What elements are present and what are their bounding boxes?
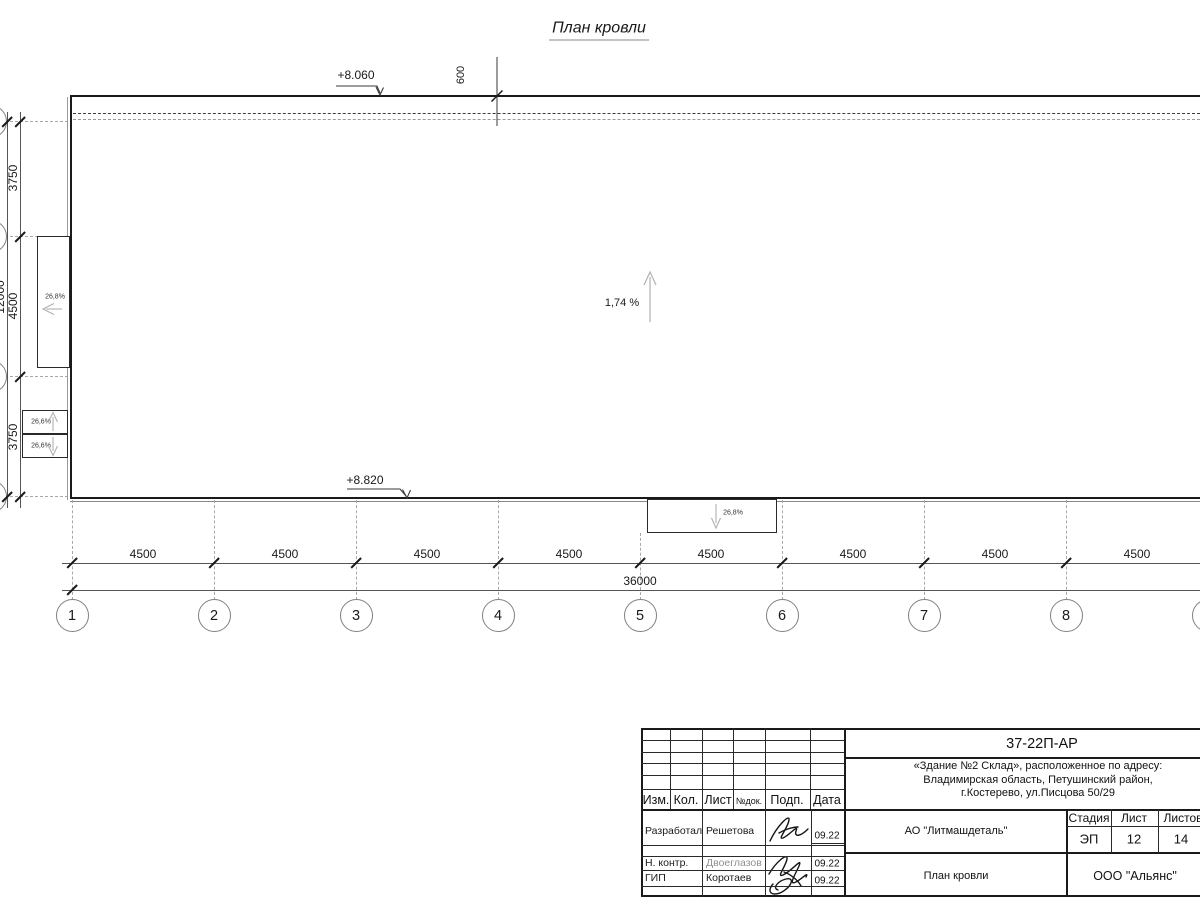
tb-line [811, 809, 812, 897]
signature-gip [769, 857, 807, 894]
tb-drawing-name: План кровли [924, 870, 989, 882]
titleblock-right-divider [845, 852, 1200, 854]
titleblock-divider-h [641, 809, 1200, 811]
tb-doc-code: 37-22П-АР [1006, 736, 1078, 752]
page-title: План кровли [549, 20, 649, 41]
tb-line [641, 763, 844, 764]
grid-line-left-3 [0, 376, 68, 377]
bottom-span-dim-5: 4500 [698, 547, 725, 561]
tb-contractor: ООО "Альянс" [1093, 869, 1177, 883]
tb-line [765, 809, 766, 897]
tb-line [641, 775, 844, 776]
tb-address-line-2: Владимирская область, Петушинский район, [923, 774, 1152, 786]
bottom-span-dim-7: 4500 [982, 547, 1009, 561]
tb-line [641, 870, 844, 871]
tb-sheet-value: 12 [1127, 832, 1141, 847]
tb-col-izm: Изм. [643, 793, 670, 807]
titleblock-code-divider [845, 757, 1200, 759]
tb-address-line-1: «Здание №2 Склад», расположенное по адре… [914, 760, 1163, 772]
tb-col-date: Дата [813, 793, 841, 807]
axis-bubble-1: 1 [56, 599, 89, 632]
lower-left-slope-top-label: 26,6% [31, 419, 51, 426]
bottom-span-dim-4: 4500 [556, 547, 583, 561]
axis-extension-line [214, 500, 215, 600]
tb-col-doc: №док. [736, 796, 762, 806]
titleblock-divider-main [844, 728, 846, 897]
tb-role-razrabotal: Разработал [645, 825, 702, 837]
tb-role-nkontr: Н. контр. [645, 857, 688, 869]
elevation-mark-top: +8.060 [337, 68, 374, 82]
left-canopy [37, 236, 70, 368]
drawing-sheet: План кровли +8.060 600 +8.820 1,74 % 26,… [0, 0, 1200, 900]
elevation-leader-top-icon [336, 86, 384, 95]
tb-line [702, 809, 703, 897]
grid-line-left-4 [0, 496, 68, 497]
parapet-dashed-line-2 [73, 119, 1200, 120]
bottom-canopy [647, 499, 777, 533]
axis-bubble-left-3 [0, 360, 7, 393]
parapet-dashed-line-1 [73, 113, 1200, 114]
bottom-span-dim-1: 4500 [130, 547, 157, 561]
tb-name-gip: Коротаев [706, 872, 751, 884]
bottom-span-dim-3: 4500 [414, 547, 441, 561]
axis-bubble-7: 7 [908, 599, 941, 632]
tb-address-line-3: г.Костерево, ул.Писцова 50/29 [961, 787, 1115, 799]
tb-line [1111, 809, 1112, 853]
lower-left-slope-bottom-label: 26,6% [31, 443, 51, 450]
axis-extension-line [924, 500, 925, 600]
axis-extension-line [782, 500, 783, 600]
bottom-span-dim-8: 4500 [1124, 547, 1151, 561]
tb-sheet-label: Лист [1121, 811, 1147, 825]
tb-line [641, 845, 844, 846]
bottom-span-dim-6: 4500 [840, 547, 867, 561]
tb-line [641, 789, 844, 790]
axis-bubble-3: 3 [340, 599, 373, 632]
titleblock-border-top [641, 728, 1200, 730]
tb-line [811, 843, 844, 844]
tb-col-list: Лист [704, 793, 731, 807]
elevation-mark-bottom: +8.820 [346, 473, 383, 487]
parapet-offset-dim: 600 [455, 66, 467, 84]
tb-date-razrabotal: 09.22 [814, 831, 839, 842]
axis-bubble-6: 6 [766, 599, 799, 632]
tb-line [1158, 809, 1159, 853]
left-dim-line [20, 112, 21, 508]
left-canopy-slope-label: 26,8% [45, 294, 65, 301]
lower-left-canopy-divider [22, 433, 68, 435]
titleblock-border-bottom [641, 895, 1200, 897]
axis-bubble-5: 5 [624, 599, 657, 632]
tb-sheets-label: Листов [1164, 811, 1200, 825]
bottom-canopy-slope-label: 26,8% [723, 510, 743, 517]
tb-stage-label: Стадия [1069, 811, 1110, 825]
left-span-dim-1: 3750 [6, 165, 20, 192]
tb-name-razrabotal: Решетова [706, 825, 754, 837]
tb-col-kol: Кол. [674, 793, 699, 807]
tb-name-nkontr: Двоеглазов [706, 857, 762, 869]
bottom-dim-line [62, 563, 1200, 564]
roof-bottom-companion-line [70, 501, 1200, 502]
tb-stage-value: ЭП [1080, 832, 1099, 847]
left-total-dim: 12000 [0, 280, 7, 313]
bottom-total-dim: 36000 [623, 574, 656, 588]
axis-extension-line [72, 500, 73, 600]
grid-line-left-1 [0, 121, 68, 122]
axis-extension-line [1066, 500, 1067, 600]
axis-bubble-2: 2 [198, 599, 231, 632]
tb-col-sign: Подп. [770, 793, 803, 807]
signature-razrabotal [770, 818, 808, 841]
axis-bubble-8: 8 [1050, 599, 1083, 632]
axis-bubble-4: 4 [482, 599, 515, 632]
main-slope-label: 1,74 % [605, 297, 639, 309]
left-span-dim-2: 4500 [6, 293, 20, 320]
axis-bubble-left-2 [0, 220, 7, 253]
axis-extension-line [498, 500, 499, 600]
axis-bubble-9: 9 [1192, 599, 1200, 632]
tb-role-gip: ГИП [645, 872, 666, 884]
tb-line [641, 740, 844, 741]
bottom-total-dim-line [62, 590, 1200, 591]
tb-date-nkontr: 09.22 [814, 859, 839, 870]
tb-line [1066, 826, 1200, 827]
bottom-span-dim-2: 4500 [272, 547, 299, 561]
tb-date-gip: 09.22 [814, 876, 839, 887]
tb-customer: АО "Литмашдеталь" [905, 825, 1008, 837]
titleblock-border-left [641, 728, 643, 897]
left-span-dim-3: 3750 [6, 424, 20, 451]
tb-sheets-value: 14 [1174, 832, 1188, 847]
tb-line [641, 752, 844, 753]
axis-extension-line [356, 500, 357, 600]
